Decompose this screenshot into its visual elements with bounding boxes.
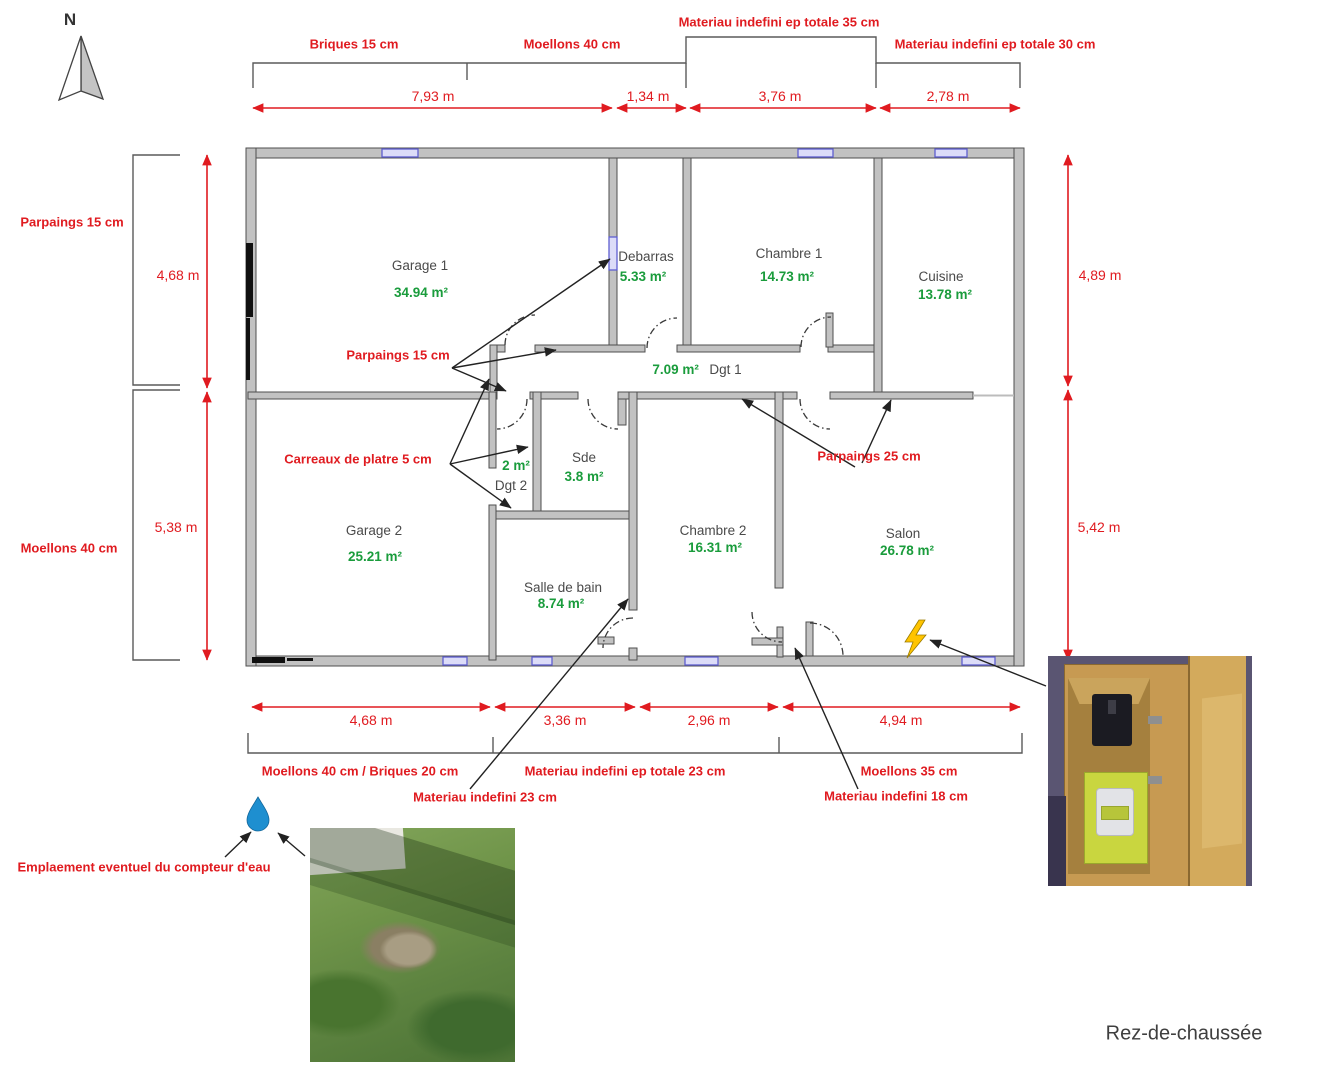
room-name-dgt1: Dgt 1	[709, 362, 741, 377]
room-name-dgt2: Dgt 2	[495, 478, 527, 494]
wall-label-parpaings25: Parpaings 25 cm	[817, 450, 920, 465]
room-name-chambre2: Chambre 2	[680, 523, 747, 539]
room-area-salon: 26.78 m²	[880, 543, 934, 559]
room-name-garage2: Garage 2	[346, 523, 402, 539]
room-area-sde: 3.8 m²	[564, 469, 603, 485]
room-name-debarras: Debarras	[618, 249, 674, 265]
room-area-dgt2: 2 m²	[502, 458, 530, 474]
north-arrow-icon	[59, 36, 103, 100]
photo-dark-corner	[1048, 796, 1066, 886]
room-label-dgt1: 7.09 m² Dgt 1	[652, 361, 741, 379]
room-area-cuisine: 13.78 m²	[918, 287, 972, 303]
cabinet-door-panel	[1202, 694, 1242, 849]
dim-left-2: 5,38 m	[155, 519, 198, 535]
wall-label-carreaux-platre: Carreaux de platre 5 cm	[284, 453, 431, 468]
floorplan-drawing	[0, 0, 1320, 1080]
wall-label-moellons35: Moellons 35 cm	[861, 765, 958, 780]
room-area-chambre2: 16.31 m²	[688, 540, 742, 556]
dim-right-1: 4,89 m	[1079, 267, 1122, 283]
room-area-garage2: 25.21 m²	[348, 549, 402, 565]
floor-title: Rez-de-chaussée	[1106, 1023, 1263, 1046]
cabinet-hinge	[1148, 716, 1162, 724]
lightning-bolt-icon	[905, 620, 926, 658]
wall-label-briques15: Briques 15 cm	[310, 38, 399, 53]
cabinet-hinge	[1148, 776, 1162, 784]
dim-bottom-1: 4,68 m	[350, 712, 393, 728]
wall-label-moellons-briques: Moellons 40 cm / Briques 20 cm	[262, 765, 459, 780]
electric-meter-photo	[1048, 656, 1252, 886]
room-name-cuisine: Cuisine	[918, 269, 963, 285]
wall-label-parpaings15-left: Parpaings 15 cm	[20, 216, 123, 231]
floorplan-page: N Materiau indefini ep totale 35 cm Briq…	[0, 0, 1320, 1080]
room-area-garage1: 34.94 m²	[394, 285, 448, 301]
room-name-sde: Sde	[572, 450, 596, 466]
room-name-garage1: Garage 1	[392, 258, 448, 274]
wall-label-mat18: Materiau indefini 18 cm	[824, 790, 968, 805]
dim-bottom-3: 2,96 m	[688, 712, 731, 728]
dim-top-3: 3,76 m	[759, 88, 802, 104]
room-name-salle-de-bain: Salle de bain	[524, 580, 602, 596]
wall-label-mat23: Materiau indefini 23 cm	[413, 791, 557, 806]
room-name-chambre1: Chambre 1	[756, 246, 823, 262]
wall-label-moellons40-left: Moellons 40 cm	[21, 542, 118, 557]
room-area-dgt1: 7.09 m²	[652, 362, 699, 377]
dim-top-1: 7,93 m	[412, 88, 455, 104]
grass-photo	[310, 828, 515, 1062]
room-name-salon: Salon	[886, 526, 921, 542]
north-label: N	[64, 10, 76, 30]
dim-bottom-2: 3,36 m	[544, 712, 587, 728]
walls	[246, 148, 1024, 666]
meter-screen	[1101, 806, 1129, 820]
wall-label-parpaings15-interior: Parpaings 15 cm	[346, 349, 449, 364]
water-meter-label: Emplaement eventuel du compteur d'eau	[17, 861, 270, 876]
wall-label-mat23-totale: Materiau indefini ep totale 23 cm	[525, 765, 726, 780]
wall-label-mat35: Materiau indefini ep totale 35 cm	[679, 16, 880, 31]
dim-right-2: 5,42 m	[1078, 519, 1121, 535]
wall-label-mat30: Materiau indefini ep totale 30 cm	[895, 38, 1096, 53]
dim-left-1: 4,68 m	[157, 267, 200, 283]
water-drop-icon	[247, 797, 269, 831]
dim-top-2: 1,34 m	[627, 88, 670, 104]
wall-label-moellons40-top: Moellons 40 cm	[524, 38, 621, 53]
dim-top-4: 2,78 m	[927, 88, 970, 104]
circuit-breaker-slot	[1108, 700, 1116, 714]
room-area-debarras: 5.33 m²	[620, 269, 667, 285]
dim-bottom-4: 4,94 m	[880, 712, 923, 728]
room-area-salle-de-bain: 8.74 m²	[538, 596, 585, 612]
room-area-chambre1: 14.73 m²	[760, 269, 814, 285]
